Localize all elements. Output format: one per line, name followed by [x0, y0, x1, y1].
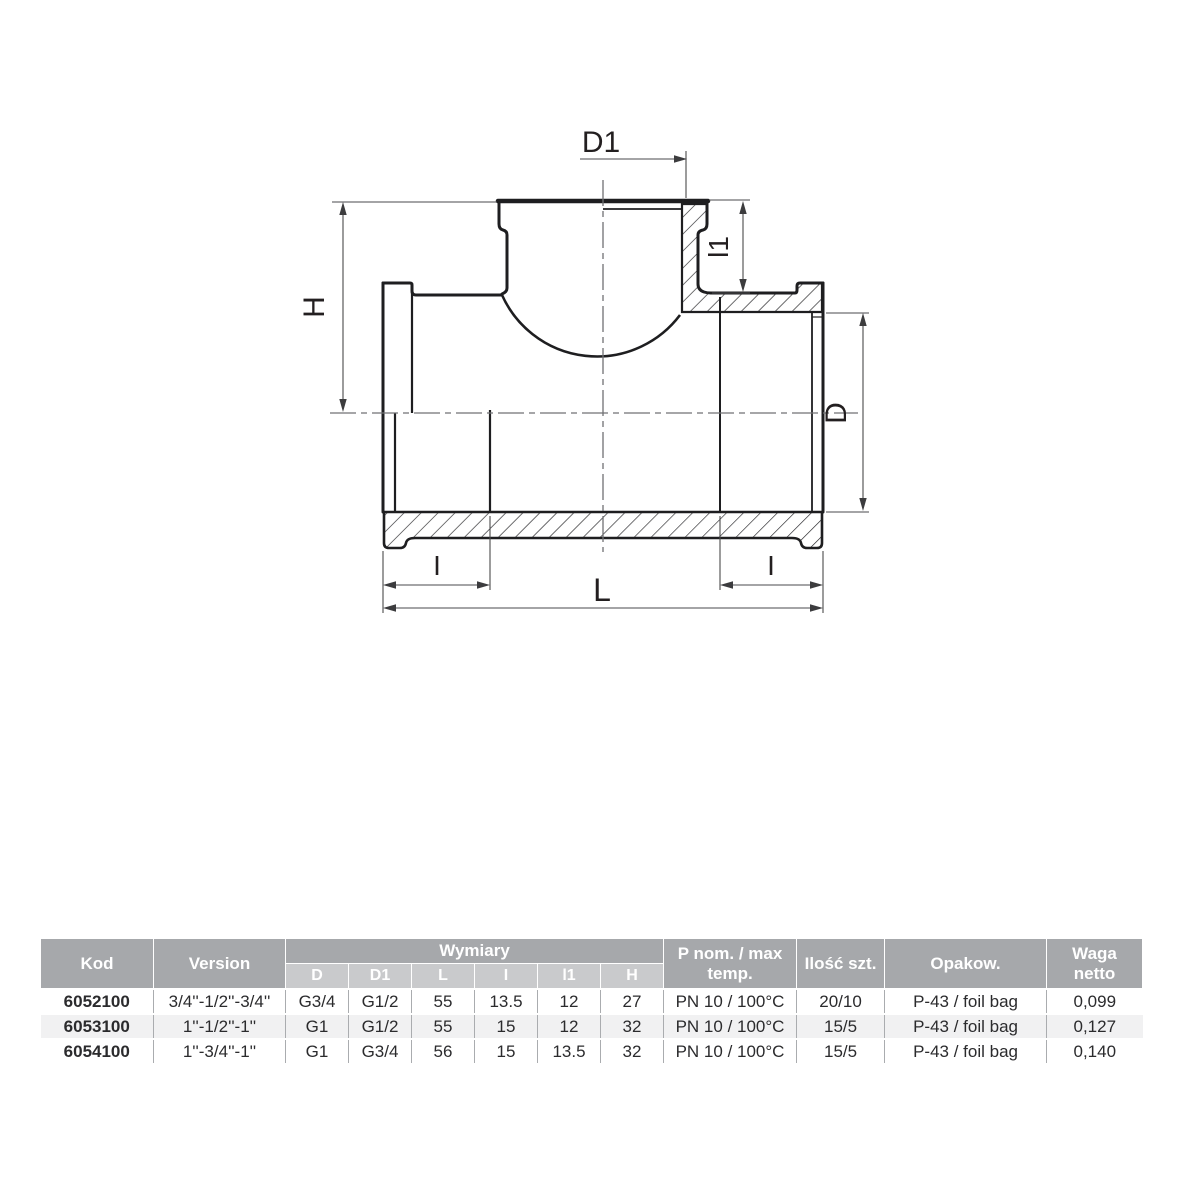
- cell-l1: 12: [538, 989, 601, 1014]
- dim-label-l1: l1: [703, 236, 734, 258]
- table-row: 6053100 1''-1/2''-1'' G1 G1/2 55 15 12 3…: [41, 1014, 1143, 1039]
- cell-pnom: PN 10 / 100°C: [664, 1039, 797, 1063]
- cell-l: 56: [412, 1039, 475, 1063]
- cell-d: G3/4: [286, 989, 349, 1014]
- cell-waga: 0,127: [1047, 1014, 1143, 1039]
- cell-i: 15: [475, 1039, 538, 1063]
- header-wymiary: Wymiary: [286, 939, 664, 964]
- cell-waga: 0,099: [1047, 989, 1143, 1014]
- cell-opakow: P-43 / foil bag: [885, 1014, 1047, 1039]
- subheader-l: L: [412, 964, 475, 990]
- bore-dome-curve: [502, 295, 680, 356]
- header-kod: Kod: [41, 939, 154, 990]
- cell-i: 13.5: [475, 989, 538, 1014]
- cell-pnom: PN 10 / 100°C: [664, 989, 797, 1014]
- cell-l: 55: [412, 989, 475, 1014]
- cell-version: 1''-3/4''-1'': [154, 1039, 286, 1063]
- subheader-i: I: [475, 964, 538, 990]
- subheader-d1: D1: [349, 964, 412, 990]
- cell-d: G1: [286, 1014, 349, 1039]
- subheader-h: H: [601, 964, 664, 990]
- cell-d1: G3/4: [349, 1039, 412, 1063]
- cell-pnom: PN 10 / 100°C: [664, 1014, 797, 1039]
- cell-ilosc: 20/10: [797, 989, 885, 1014]
- cell-l1: 12: [538, 1014, 601, 1039]
- dim-label-d1: D1: [582, 126, 620, 159]
- dim-label-i-right: I: [767, 550, 775, 581]
- cell-version: 1''-1/2''-1'': [154, 1014, 286, 1039]
- dim-label-d: D: [820, 402, 853, 424]
- header-opakow: Opakow.: [885, 939, 1047, 990]
- cell-h: 32: [601, 1014, 664, 1039]
- cell-opakow: P-43 / foil bag: [885, 1039, 1047, 1063]
- dim-label-h: H: [298, 296, 331, 318]
- table-row: 6052100 3/4''-1/2''-3/4'' G3/4 G1/2 55 1…: [41, 989, 1143, 1014]
- centerlines: [330, 180, 858, 552]
- tee-fitting-drawing: D1 l1 H D I I L: [0, 0, 1181, 930]
- cell-h: 32: [601, 1039, 664, 1063]
- table-row: 6054100 1''-3/4''-1'' G1 G3/4 56 15 13.5…: [41, 1039, 1143, 1063]
- cell-kod: 6053100: [41, 1014, 154, 1039]
- header-waga: Waga netto: [1047, 939, 1143, 990]
- dim-label-i-left: I: [433, 550, 441, 581]
- subheader-d: D: [286, 964, 349, 990]
- spec-table: Kod Version Wymiary P nom. / max temp. I…: [40, 938, 1143, 1063]
- cell-waga: 0,140: [1047, 1039, 1143, 1063]
- cell-i: 15: [475, 1014, 538, 1039]
- cell-version: 3/4''-1/2''-3/4'': [154, 989, 286, 1014]
- cell-ilosc: 15/5: [797, 1014, 885, 1039]
- subheader-l1: l1: [538, 964, 601, 990]
- cell-kod: 6054100: [41, 1039, 154, 1063]
- cell-opakow: P-43 / foil bag: [885, 989, 1047, 1014]
- cell-kod: 6052100: [41, 989, 154, 1014]
- header-ilosc: Ilość szt.: [797, 939, 885, 990]
- cell-ilosc: 15/5: [797, 1039, 885, 1063]
- dim-label-l: L: [593, 572, 611, 608]
- cell-d: G1: [286, 1039, 349, 1063]
- cell-l: 55: [412, 1014, 475, 1039]
- cell-l1: 13.5: [538, 1039, 601, 1063]
- cell-d1: G1/2: [349, 1014, 412, 1039]
- cell-d1: G1/2: [349, 989, 412, 1014]
- datasheet-page: D1 l1 H D I I L Kod Version Wymiary P no…: [0, 0, 1181, 1181]
- header-pnom: P nom. / max temp.: [664, 939, 797, 990]
- cell-h: 27: [601, 989, 664, 1014]
- internal-edges: [395, 209, 822, 512]
- header-version: Version: [154, 939, 286, 990]
